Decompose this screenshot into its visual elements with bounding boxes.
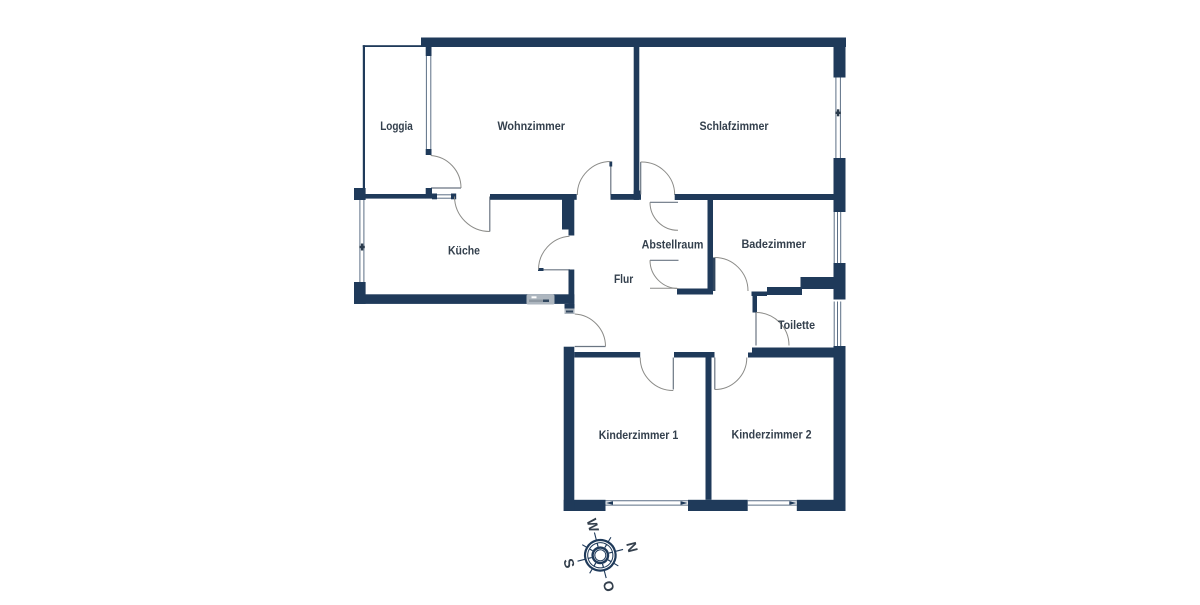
svg-text:Loggia: Loggia [380,120,413,133]
svg-text:Badezimmer: Badezimmer [741,238,806,251]
svg-text:Toilette: Toilette [778,319,816,332]
svg-text:Wohnzimmer: Wohnzimmer [497,120,565,133]
svg-text:Kinderzimmer 1: Kinderzimmer 1 [599,429,679,442]
svg-text:Küche: Küche [448,244,480,257]
svg-text:Schlafzimmer: Schlafzimmer [700,120,769,133]
svg-text:Abstellraum: Abstellraum [642,238,704,251]
svg-text:Kinderzimmer 2: Kinderzimmer 2 [732,429,812,442]
svg-text:Flur: Flur [614,273,634,286]
